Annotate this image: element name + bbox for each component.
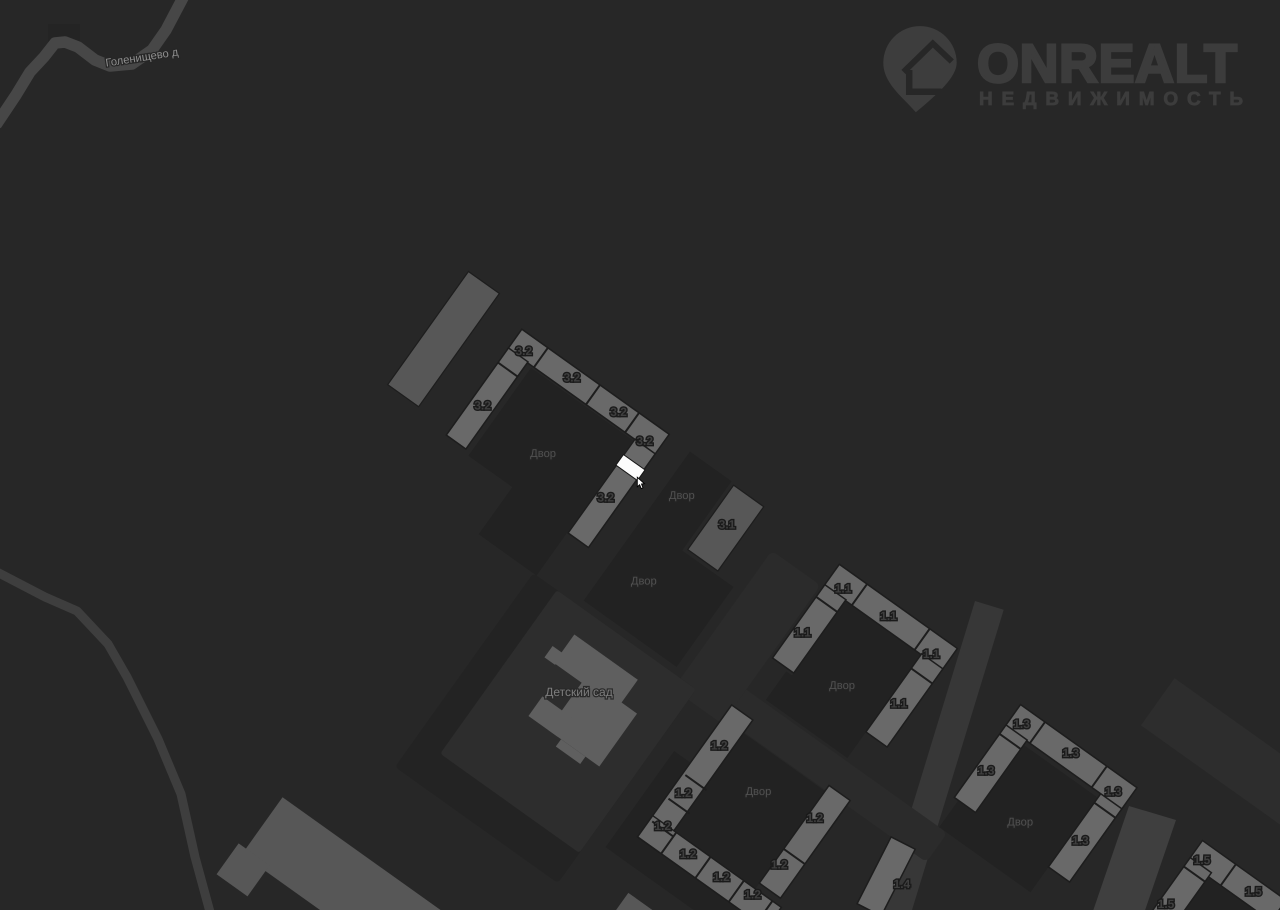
svg-text:1.2: 1.2 xyxy=(675,786,692,800)
svg-text:1.2: 1.2 xyxy=(713,870,730,884)
svg-text:Двор: Двор xyxy=(631,576,657,588)
svg-text:1.3: 1.3 xyxy=(978,764,995,778)
svg-text:Двор: Двор xyxy=(669,490,695,502)
svg-text:Двор: Двор xyxy=(829,680,855,692)
svg-text:Двор: Двор xyxy=(745,786,771,798)
svg-text:1.5: 1.5 xyxy=(1245,885,1262,899)
svg-text:1.2: 1.2 xyxy=(771,857,788,871)
svg-text:1.4: 1.4 xyxy=(894,877,911,891)
svg-text:1.5: 1.5 xyxy=(1194,853,1211,867)
svg-text:1.3: 1.3 xyxy=(1072,834,1089,848)
svg-text:1.2: 1.2 xyxy=(654,819,671,833)
svg-text:Двор: Двор xyxy=(1007,817,1033,829)
svg-text:1.3: 1.3 xyxy=(1062,746,1079,760)
svg-text:1.1: 1.1 xyxy=(923,647,940,661)
svg-text:3.2: 3.2 xyxy=(610,405,627,419)
svg-text:3.2: 3.2 xyxy=(636,434,653,448)
svg-text:1.2: 1.2 xyxy=(711,739,728,753)
svg-text:1.2: 1.2 xyxy=(680,847,697,861)
svg-text:Детский сад: Детский сад xyxy=(545,685,612,699)
svg-text:3.2: 3.2 xyxy=(564,370,581,384)
svg-text:1.1: 1.1 xyxy=(794,626,811,640)
svg-text:3.2: 3.2 xyxy=(474,398,491,412)
svg-text:ONREALT: ONREALT xyxy=(977,34,1237,94)
svg-text:3.2: 3.2 xyxy=(597,490,614,504)
svg-text:1.2: 1.2 xyxy=(744,887,761,901)
svg-text:1.1: 1.1 xyxy=(891,697,908,711)
svg-text:1.1: 1.1 xyxy=(880,609,897,623)
svg-text:3.1: 3.1 xyxy=(719,518,736,532)
svg-text:1.3: 1.3 xyxy=(1105,784,1122,798)
svg-text:3.2: 3.2 xyxy=(515,344,532,358)
svg-text:1.1: 1.1 xyxy=(835,581,852,595)
svg-text:НЕДВИЖИМОСТЬ: НЕДВИЖИМОСТЬ xyxy=(979,89,1252,110)
svg-text:1.2: 1.2 xyxy=(807,811,824,825)
svg-text:1.3: 1.3 xyxy=(1013,717,1030,731)
svg-text:1.5: 1.5 xyxy=(1158,897,1175,910)
svg-text:Двор: Двор xyxy=(530,448,556,460)
